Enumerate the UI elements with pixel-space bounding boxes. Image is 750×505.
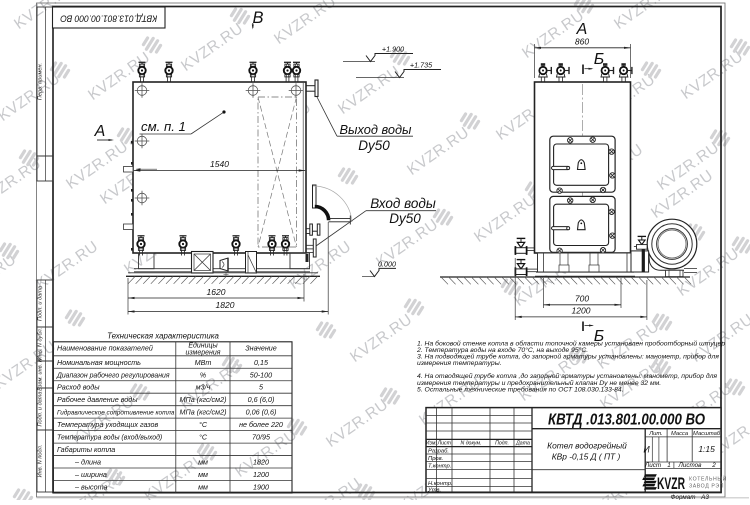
svg-text:Расход воды: Расход воды (57, 383, 100, 392)
svg-text:Разраб.: Разраб. (428, 449, 449, 455)
svg-text:1200: 1200 (572, 306, 591, 316)
svg-text:– длина: – длина (74, 458, 101, 467)
svg-text:Лист: Лист (644, 462, 661, 469)
svg-text:KVZR: KVZR (657, 475, 685, 493)
svg-text:Подп.: Подп. (495, 441, 509, 447)
svg-text:А: А (94, 123, 106, 140)
svg-text:Масштаб: Масштаб (693, 431, 721, 437)
svg-text:Температура воды (вход/выход): Температура воды (вход/выход) (57, 434, 162, 442)
svg-text:1: 1 (667, 462, 671, 469)
svg-text:Диапазон рабочего регулировани: Диапазон рабочего регулирования (56, 371, 170, 379)
svg-text:мм: мм (198, 470, 208, 479)
svg-text:Т.контр.: Т.контр. (428, 464, 451, 470)
svg-text:Лит.: Лит. (648, 431, 663, 437)
svg-text:ЗАВОД РЭП: ЗАВОД РЭП (689, 484, 724, 490)
svg-text:°С: °С (199, 420, 208, 429)
svg-text:Изм.: Изм. (426, 441, 437, 447)
svg-text:0,6 (6,0): 0,6 (6,0) (248, 395, 275, 404)
svg-text:Дата: Дата (515, 441, 530, 447)
svg-text:1820: 1820 (216, 300, 235, 310)
svg-text:0,06 (0,6): 0,06 (0,6) (246, 408, 277, 417)
svg-text:+1.900: +1.900 (382, 45, 404, 54)
svg-text:Формат: Формат (670, 494, 695, 500)
svg-text:860: 860 (575, 37, 589, 47)
svg-text:1820: 1820 (253, 458, 269, 467)
svg-text:0,15: 0,15 (254, 358, 269, 367)
svg-text:м3/ч: м3/ч (196, 383, 211, 392)
svg-text:см. п. 1: см. п. 1 (141, 119, 186, 134)
svg-text:Подп. и дата: Подп. и дата (38, 286, 44, 321)
svg-text:– ширина: – ширина (74, 470, 107, 479)
svg-text:700: 700 (575, 294, 589, 304)
svg-text:1620: 1620 (207, 287, 226, 297)
svg-text:не более 220: не более 220 (239, 420, 283, 429)
svg-text:Dy50: Dy50 (358, 138, 390, 153)
svg-text:Н.контр.: Н.контр. (428, 481, 453, 487)
svg-text:Номинальная мощность: Номинальная мощность (57, 358, 141, 367)
svg-text:Перв. примен.: Перв. примен. (38, 63, 44, 100)
svg-text:А3: А3 (700, 494, 709, 500)
svg-text:1200: 1200 (253, 470, 269, 479)
svg-text:В: В (252, 9, 263, 27)
svg-text:МПа (кгс/см2): МПа (кгс/см2) (180, 408, 227, 417)
svg-text:Гидравлическое сопротивление к: Гидравлическое сопротивление котла (57, 409, 175, 417)
svg-text:Dy50: Dy50 (389, 211, 421, 226)
svg-text:мм: мм (198, 483, 208, 492)
svg-text:50-100: 50-100 (250, 370, 272, 379)
svg-text:°С: °С (199, 433, 208, 442)
svg-text:2: 2 (711, 462, 716, 469)
svg-text:мм: мм (198, 458, 208, 467)
svg-text:0.000: 0.000 (378, 259, 396, 268)
svg-text:Габариты котла: Габариты котла (57, 445, 115, 454)
svg-text:Пров.: Пров. (428, 456, 443, 462)
svg-text:1:15: 1:15 (698, 444, 715, 454)
svg-text:измерения температуры.: измерения температуры. (417, 360, 502, 367)
svg-text:70/95: 70/95 (252, 433, 271, 442)
svg-text:Масса: Масса (671, 431, 689, 437)
svg-text:Наименование показателей: Наименование показателей (57, 344, 153, 353)
svg-text:Значение: Значение (245, 344, 277, 353)
svg-text:КВТД.013.801.00.000 ВО: КВТД.013.801.00.000 ВО (60, 14, 157, 24)
svg-text:%: % (200, 370, 207, 379)
svg-text:Рабочее давление воды: Рабочее давление воды (57, 395, 138, 404)
svg-text:МПа (кгс/см2): МПа (кгс/см2) (180, 395, 227, 404)
svg-text:Единицы: Единицы (188, 341, 218, 349)
svg-text:Листов: Листов (678, 462, 703, 469)
svg-text:Инв. N дубл.: Инв. N дубл. (38, 328, 44, 360)
svg-text:КВр -0,15 Д ( ПТ ): КВр -0,15 Д ( ПТ ) (552, 452, 621, 462)
svg-text:1540: 1540 (210, 159, 229, 169)
svg-text:+1.735: +1.735 (410, 61, 433, 70)
svg-text:Температура уходящих газов: Температура уходящих газов (57, 420, 159, 429)
svg-text:Вход воды: Вход воды (370, 196, 436, 211)
svg-text:Подп. и дата: Подп. и дата (38, 391, 44, 426)
svg-text:Выход воды: Выход воды (340, 122, 413, 137)
svg-text:КВТД .013.801.00.000 ВО: КВТД .013.801.00.000 ВО (548, 412, 705, 429)
svg-text:Утв.: Утв. (427, 488, 441, 494)
svg-text:Взам. инв. N: Взам. инв. N (38, 357, 44, 391)
svg-text:Инв. N подл.: Инв. N подл. (38, 445, 44, 478)
svg-text:– высота: – высота (74, 483, 108, 492)
svg-text:5. Остальные технические треб: 5. Остальные технические требования по О… (417, 385, 624, 393)
svg-text:МВт: МВт (195, 358, 212, 367)
svg-text:Котел водогрейный: Котел водогрейный (547, 441, 627, 451)
svg-text:Б: Б (594, 51, 604, 68)
svg-text:Техническая характеристика: Техническая характеристика (107, 332, 219, 341)
svg-text:N докум.: N докум. (461, 441, 482, 447)
svg-text:1900: 1900 (253, 483, 269, 492)
svg-text:КОТЕЛЬНЫЙ: КОТЕЛЬНЫЙ (689, 475, 727, 483)
svg-text:измерения: измерения (185, 349, 220, 356)
svg-text:Лист: Лист (437, 441, 452, 447)
svg-text:А: А (576, 21, 588, 38)
svg-text:И: И (643, 445, 650, 455)
